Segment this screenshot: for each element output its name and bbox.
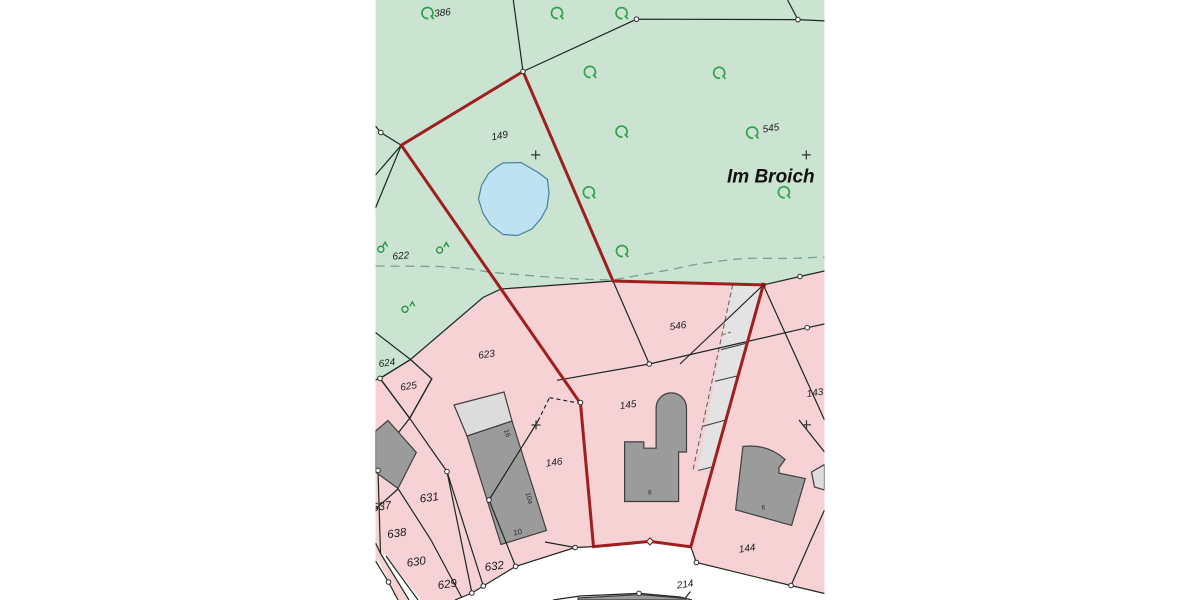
svg-text:8: 8 (648, 490, 652, 497)
svg-text:6: 6 (762, 505, 766, 512)
svg-text:386: 386 (434, 7, 452, 20)
svg-text:622: 622 (392, 250, 410, 262)
svg-text:Im Broich: Im Broich (727, 167, 815, 188)
